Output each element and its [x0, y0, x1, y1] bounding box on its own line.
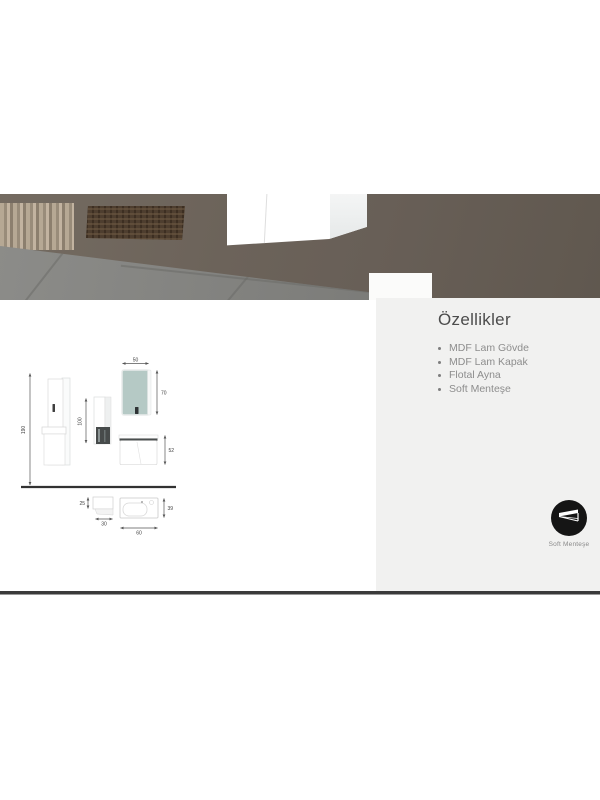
bullet-icon: [438, 361, 441, 364]
technical-drawing: 190 100 5: [18, 356, 193, 541]
cabinet-door-seam: [264, 194, 268, 247]
svg-text:30: 30: [101, 522, 107, 528]
dim-mirror-width: 50: [123, 357, 149, 363]
bullet-icon: [438, 388, 441, 391]
features-title: Özellikler: [438, 310, 511, 330]
curtain: [0, 203, 74, 250]
svg-text:39: 39: [168, 506, 174, 512]
svg-text:52: 52: [169, 448, 175, 454]
svg-text:60: 60: [136, 531, 142, 537]
tile-grout-line: [213, 264, 260, 300]
dim-total-height: 190: [21, 374, 30, 486]
tile-grout-line: [19, 253, 64, 300]
wicker-basket: [86, 206, 185, 240]
handle-icon: [53, 404, 56, 412]
dim-basin-width: 60: [121, 528, 158, 537]
washbasin-plan: [120, 498, 158, 518]
side-box-plan: [93, 497, 113, 515]
badge-caption: Soft Menteşe: [529, 541, 600, 548]
svg-text:25: 25: [79, 501, 85, 507]
svg-text:190: 190: [21, 426, 27, 435]
mid-cabinet-view: [94, 397, 111, 444]
badge-circle: [551, 500, 587, 536]
dim-cabinet-height: 52: [165, 436, 174, 465]
side-view-column: [42, 378, 70, 465]
dim-side-box-width: 30: [96, 519, 113, 528]
svg-text:70: 70: [161, 391, 167, 397]
feature-item: MDF Lam Kapak: [438, 356, 529, 370]
feature-item: MDF Lam Gövde: [438, 342, 529, 356]
dim-basin-depth: 39: [164, 499, 173, 518]
svg-text:100: 100: [78, 417, 84, 426]
soft-hinge-badge: Soft Menteşe: [529, 500, 600, 548]
product-spec-page: Özellikler MDF Lam Gövde MDF Lam Kapak F…: [0, 0, 600, 800]
bullet-icon: [438, 347, 441, 350]
cabinet-side-face: [330, 194, 367, 247]
washbasin-cabinet-view: [119, 435, 158, 465]
svg-text:50: 50: [133, 357, 139, 363]
wall-cabinet: [227, 194, 367, 247]
dim-mirror-height: 70: [157, 371, 167, 415]
product-photo: [0, 194, 600, 300]
bullet-icon: [438, 374, 441, 377]
features-list: MDF Lam Gövde MDF Lam Kapak Flotal Ayna …: [438, 342, 529, 396]
dim-side-box-depth: 25: [79, 498, 88, 509]
mirror-view: [122, 370, 151, 415]
dim-column-height: 100: [78, 399, 87, 444]
divider: [0, 591, 600, 595]
feature-item: Soft Menteşe: [438, 383, 529, 397]
panel-top-tab: [369, 273, 432, 300]
feature-item: Flotal Ayna: [438, 369, 529, 383]
soft-close-hinge-icon: [551, 500, 587, 536]
